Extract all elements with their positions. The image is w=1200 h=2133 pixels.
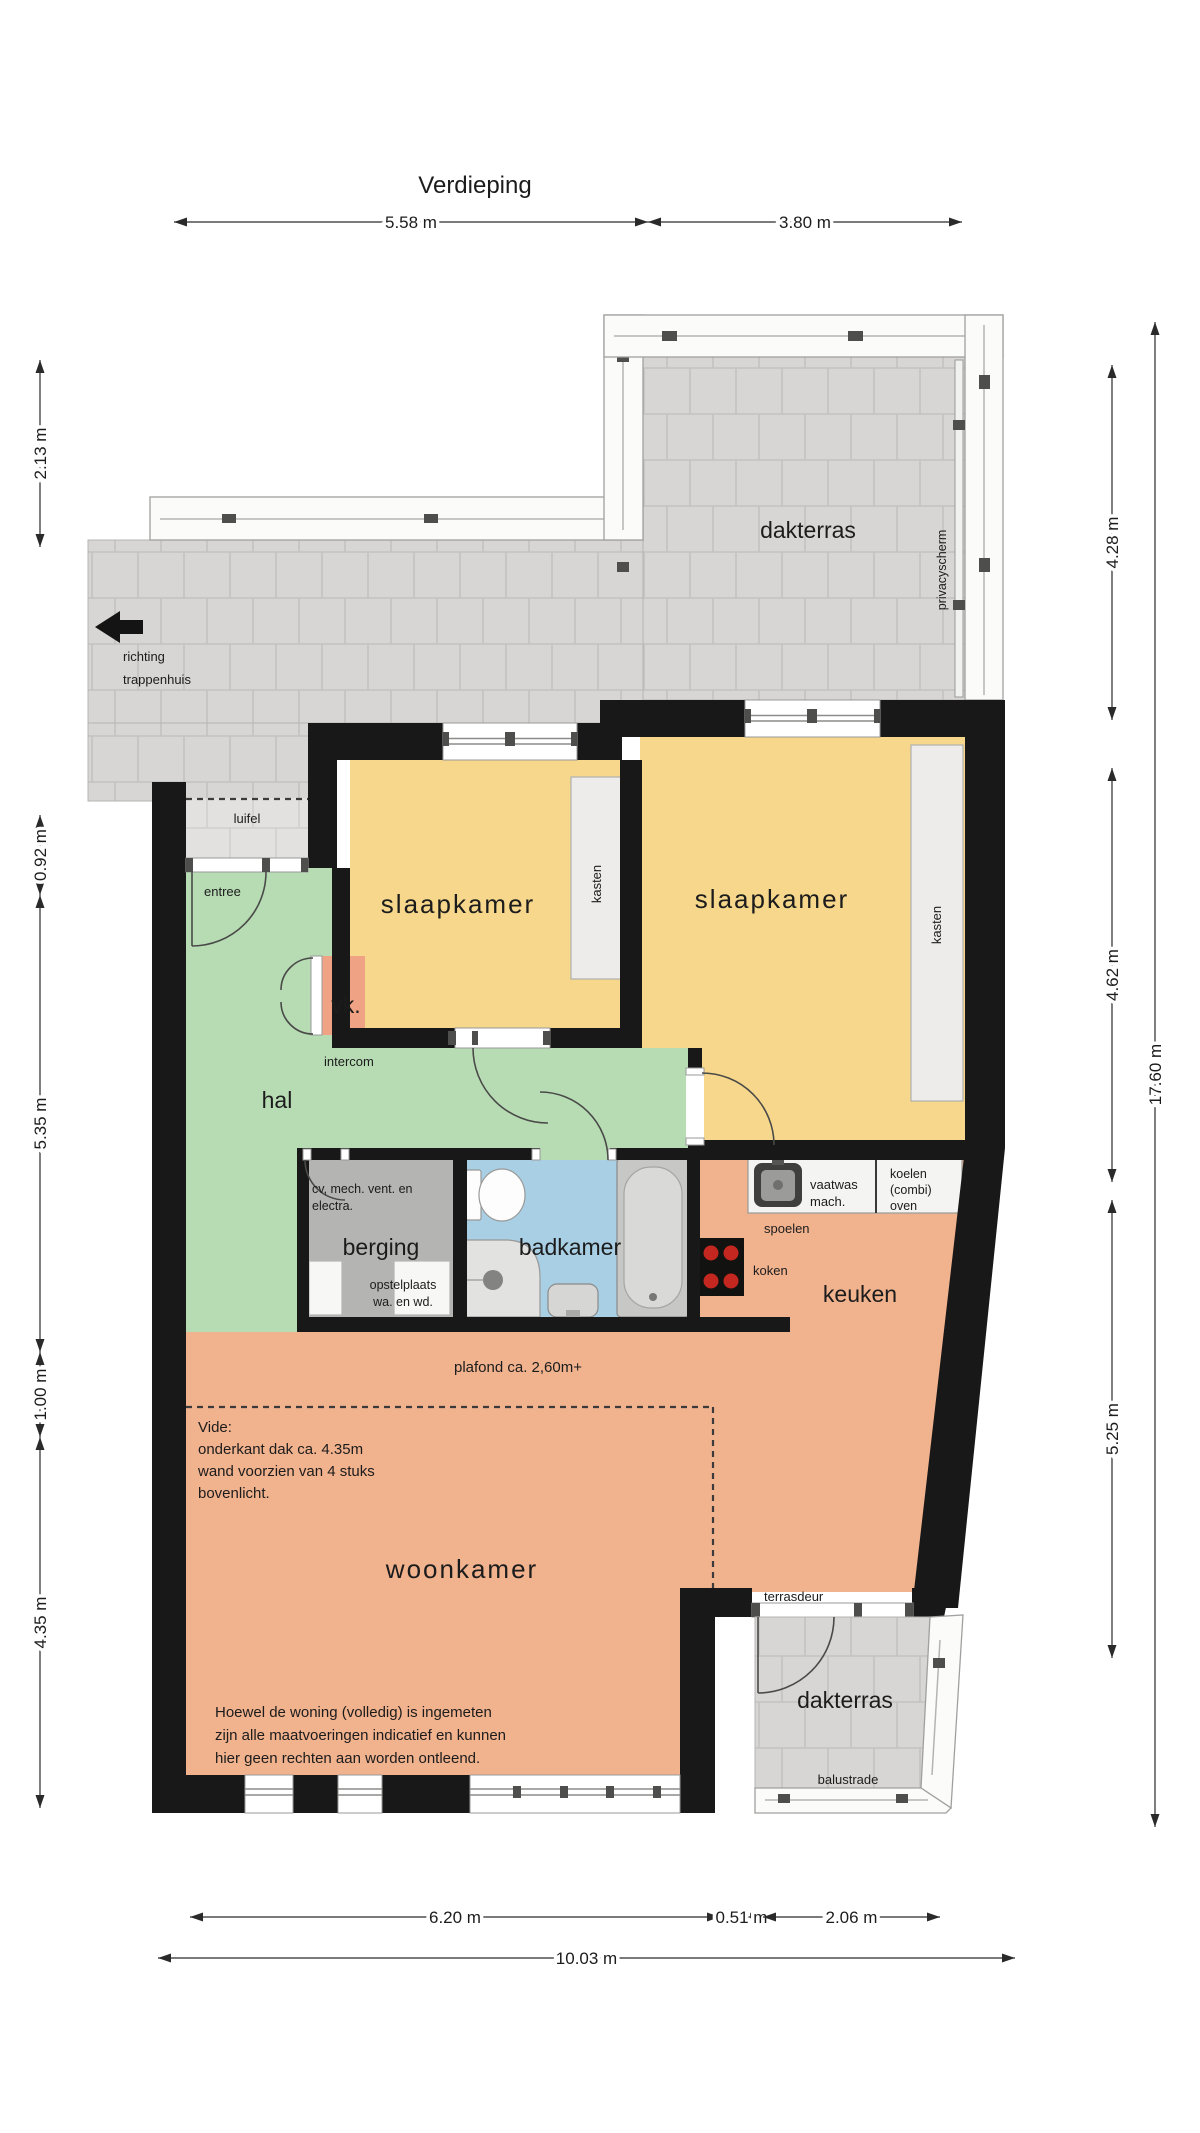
dimension-left-2: 0.92 m <box>31 815 50 895</box>
window-living-long <box>470 1775 680 1813</box>
dimension-arrowhead <box>36 1437 45 1450</box>
dimension-right-3: 5.25 m <box>1103 1200 1122 1658</box>
entrance-door-sill <box>186 858 308 872</box>
dimension-arrowhead <box>36 895 45 908</box>
label-vide-line2: onderkant dak ca. 4.35m <box>198 1441 363 1458</box>
dimension-arrowhead <box>36 1795 45 1808</box>
label-cv-line2: electra. <box>312 1199 353 1213</box>
dimension-arrowhead <box>174 218 187 227</box>
canopy-luifel <box>186 798 308 860</box>
dimension-arrowhead <box>927 1913 940 1922</box>
room-label-woonkamer: woonkamer <box>385 1554 538 1584</box>
disclaimer-line2: zijn alle maatvoeringen indicatief en ku… <box>215 1727 506 1744</box>
entrance-recess-tiles <box>88 723 310 801</box>
balustrade-post <box>979 375 990 389</box>
label-opstelplaats-line2: wa. en wd. <box>372 1295 433 1309</box>
terrace-walkway-tiles <box>88 540 643 723</box>
dimension-arrowhead <box>1002 1954 1015 1963</box>
label-koken: koken <box>753 1263 788 1278</box>
label-intercom: intercom <box>324 1054 374 1069</box>
label-spoelen: spoelen <box>764 1221 810 1236</box>
label-vide-line1: Vide: <box>198 1419 232 1436</box>
dimension-label: 5.35 m <box>31 1098 50 1150</box>
label-kasten-2: kasten <box>929 906 944 944</box>
label-plafond: plafond ca. 2,60m+ <box>454 1359 582 1376</box>
disclaimer-line1: Hoewel de woning (volledig) is ingemeten <box>215 1704 492 1721</box>
label-koelen-line3: oven <box>890 1199 917 1213</box>
balustrade-post <box>896 1794 908 1803</box>
room-label-keuken: keuken <box>823 1281 897 1307</box>
privacy-screen-post <box>953 420 965 430</box>
dimension-right-4: 17.60 m <box>1146 322 1165 1827</box>
balustrade-post <box>979 558 990 572</box>
dimension-arrowhead <box>36 815 45 828</box>
floorplan-page: Verdieping dakterras slaapkamer slaapkam… <box>0 0 1200 2133</box>
dimension-arrowhead <box>1108 1200 1117 1213</box>
page-title: Verdieping <box>418 172 531 199</box>
dimension-left-3: 5.35 m <box>31 895 50 1352</box>
dimension-arrowhead <box>36 1352 45 1365</box>
dimension-label: 2.13 m <box>31 428 50 480</box>
dimension-arrowhead <box>1108 1645 1117 1658</box>
left-exterior-wall <box>152 782 186 1813</box>
appliance-box <box>309 1261 342 1315</box>
room-label-hal: hal <box>262 1087 293 1113</box>
vk-door <box>311 956 322 1035</box>
label-vide-line3: wand voorzien van 4 stuks <box>197 1463 375 1480</box>
toilet-icon <box>466 1169 525 1221</box>
dimension-left-4: 1.00 m <box>31 1352 50 1437</box>
washbasin-icon <box>548 1284 598 1317</box>
dimension-arrowhead <box>36 534 45 547</box>
dimension-label: 0.92 m <box>31 829 50 881</box>
dimension-arrowhead <box>1151 322 1160 335</box>
window-living-1 <box>245 1775 293 1813</box>
room-label-slaapkamer-1: slaapkamer <box>381 889 535 919</box>
balustrade-post <box>662 331 677 341</box>
label-kasten-1: kasten <box>589 865 604 903</box>
dimension-arrowhead <box>635 218 648 227</box>
dimension-right-2: 4.62 m <box>1103 768 1122 1182</box>
label-luifel: luifel <box>234 811 261 826</box>
dimension-right-1: 4.28 m <box>1103 365 1122 720</box>
room-label-vk: vk. <box>331 992 360 1018</box>
balustrade-post <box>848 331 863 341</box>
dimension-arrowhead <box>1108 707 1117 720</box>
dimension-top-1: 5.58 m <box>174 213 648 232</box>
dimension-bottom-3: 2.06 m <box>763 1908 940 1927</box>
dimension-label: 4.28 m <box>1103 517 1122 569</box>
dimension-label: 17.60 m <box>1146 1044 1165 1105</box>
dimension-arrowhead <box>1151 1814 1160 1827</box>
floorplan-drawing: Verdieping dakterras slaapkamer slaapkam… <box>0 0 1200 2133</box>
label-opstelplaats-line1: opstelplaats <box>370 1278 437 1292</box>
label-terrasdeur: terrasdeur <box>764 1589 824 1604</box>
dimension-bottom-2: 0.51 m <box>716 1908 768 1927</box>
dimension-arrowhead <box>36 882 45 895</box>
window-bedroom1 <box>443 723 577 760</box>
label-cv-line1: cv, mech. vent. en <box>312 1182 413 1196</box>
terrace-door-sill <box>752 1603 913 1617</box>
privacy-screen-post <box>953 600 965 610</box>
dimension-label: 5.58 m <box>385 213 437 232</box>
dimension-arrowhead <box>648 218 661 227</box>
dimension-arrowhead <box>158 1954 171 1963</box>
dimension-label: 6.20 m <box>429 1908 481 1927</box>
balustrade-post <box>222 514 236 523</box>
dimension-bottom-1: 6.20 m <box>190 1908 720 1927</box>
room-label-dakterras-top: dakterras <box>760 517 856 543</box>
disclaimer-line3: hier geen rechten aan worden ontleend. <box>215 1750 480 1767</box>
label-richting-line2: trappenhuis <box>123 672 191 687</box>
bedroom1-door-sill <box>448 1028 551 1048</box>
dimension-left-1: 2.13 m <box>31 360 50 547</box>
dimension-label: 2.06 m <box>826 1908 878 1927</box>
label-richting-line1: richting <box>123 649 165 664</box>
cooktop-icon <box>698 1238 744 1296</box>
label-entree: entree <box>204 884 241 899</box>
privacy-screen <box>955 360 963 697</box>
balustrade-post <box>778 1794 790 1803</box>
room-label-dakterras-bottom: dakterras <box>797 1687 893 1713</box>
dimension-label: 10.03 m <box>556 1949 617 1968</box>
label-koelen-line1: koelen <box>890 1167 927 1181</box>
window-living-2 <box>338 1775 382 1813</box>
balustrade-post <box>424 514 438 523</box>
dimension-left-5: 4.35 m <box>31 1437 50 1808</box>
dimension-label: 0.51 m <box>716 1908 768 1927</box>
dimension-label: 4.35 m <box>31 1597 50 1649</box>
room-label-slaapkamer-2: slaapkamer <box>695 884 849 914</box>
dimension-label: 1.00 m <box>31 1369 50 1421</box>
room-label-berging: berging <box>343 1234 420 1260</box>
label-balustrade: balustrade <box>818 1772 879 1787</box>
label-vaatwas-line2: mach. <box>810 1194 845 1209</box>
bedroom2-door-gap <box>686 1068 704 1145</box>
dimension-arrowhead <box>1108 768 1117 781</box>
label-vaatwas-line1: vaatwas <box>810 1177 858 1192</box>
dimension-bottom-4: 10.03 m <box>158 1949 1015 1968</box>
balustrade-post <box>617 562 629 572</box>
bathtub-icon <box>617 1158 689 1317</box>
dimension-label: 4.62 m <box>1103 949 1122 1001</box>
label-privacyscherm: privacyscherm <box>935 530 949 611</box>
canopy-area <box>186 798 308 860</box>
dimension-label: 3.80 m <box>779 213 831 232</box>
dimension-arrowhead <box>1108 365 1117 378</box>
window-bedroom2 <box>745 700 880 737</box>
dimension-label: 5.25 m <box>1103 1403 1122 1455</box>
dimension-arrowhead <box>949 218 962 227</box>
dimension-arrowhead <box>36 1339 45 1352</box>
dimension-arrowhead <box>36 1424 45 1437</box>
balustrade-post <box>933 1658 945 1668</box>
label-vide-line4: bovenlicht. <box>198 1485 270 1502</box>
room-label-badkamer: badkamer <box>519 1234 622 1260</box>
dimension-arrowhead <box>1108 1169 1117 1182</box>
dimension-arrowhead <box>36 360 45 373</box>
dimension-arrowhead <box>190 1913 203 1922</box>
label-koelen-line2: (combi) <box>890 1183 932 1197</box>
kitchen-sink-icon <box>754 1160 802 1207</box>
dimension-top-2: 3.80 m <box>648 213 962 232</box>
